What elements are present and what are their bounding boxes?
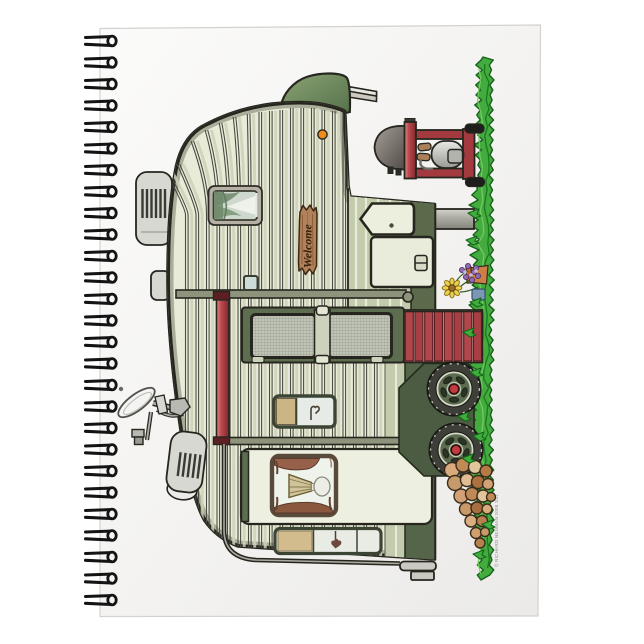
svg-text:© RICHARD NEUMAN 2008 S31: © RICHARD NEUMAN 2008 S31: [493, 494, 499, 567]
svg-text:Welcome: Welcome: [301, 224, 315, 268]
